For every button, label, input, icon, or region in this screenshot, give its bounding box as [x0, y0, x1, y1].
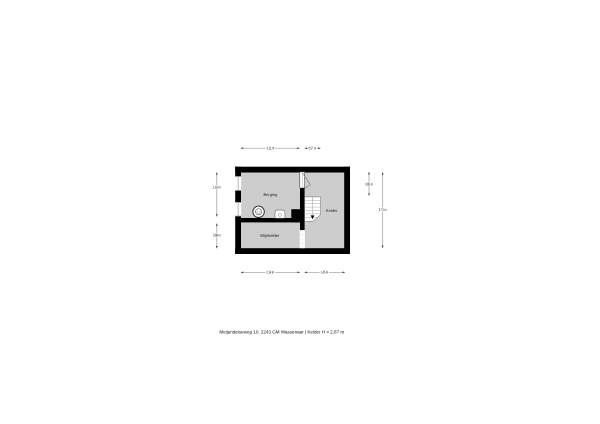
svg-text:2,11 m: 2,11 m [267, 146, 275, 151]
svg-text:0,85 m: 0,85 m [365, 181, 373, 186]
svg-text:2,71 m: 2,71 m [379, 207, 387, 212]
svg-text:0,57 m: 0,57 m [309, 146, 317, 151]
svg-text:2,14 m: 2,14 m [266, 270, 274, 275]
svg-text:Wijnkelder: Wijnkelder [260, 233, 280, 238]
svg-text:Meijendelseweg 10, 2243 GM Was: Meijendelseweg 10, 2243 GM Wassenaar | K… [219, 329, 344, 334]
svg-text:Berging: Berging [264, 192, 278, 197]
svg-text:1,62 m: 1,62 m [213, 185, 221, 190]
svg-text:1,45 m: 1,45 m [321, 270, 329, 275]
svg-text:Kelder: Kelder [326, 208, 338, 213]
svg-text:0,89 m: 0,89 m [213, 232, 221, 237]
